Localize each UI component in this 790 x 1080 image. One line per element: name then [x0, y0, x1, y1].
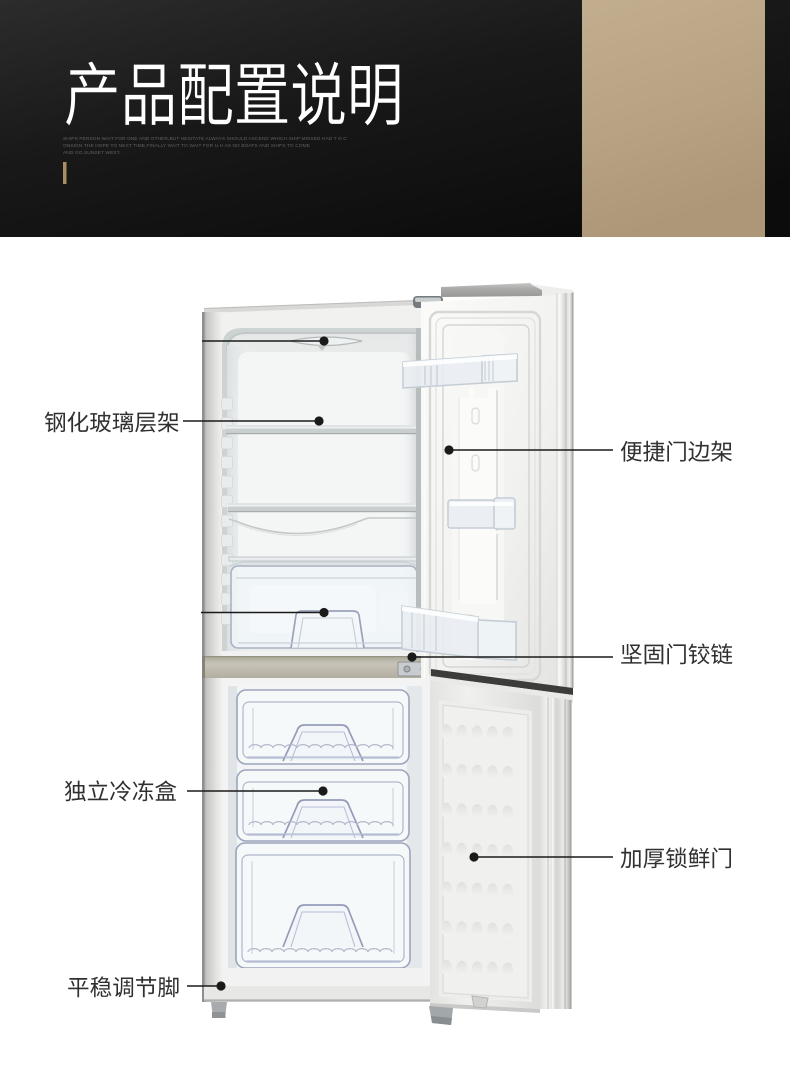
svg-text:SHIPS PERSON WAIT FOR ONE AND: SHIPS PERSON WAIT FOR ONE AND OTHER,BUT …	[63, 136, 347, 142]
svg-text:AND GO,SUNSET WEST.: AND GO,SUNSET WEST.	[63, 150, 121, 156]
svg-text:ONSIGN THE HOPE TO NEXT TIME,F: ONSIGN THE HOPE TO NEXT TIME,FINALLY WAI…	[63, 143, 310, 149]
